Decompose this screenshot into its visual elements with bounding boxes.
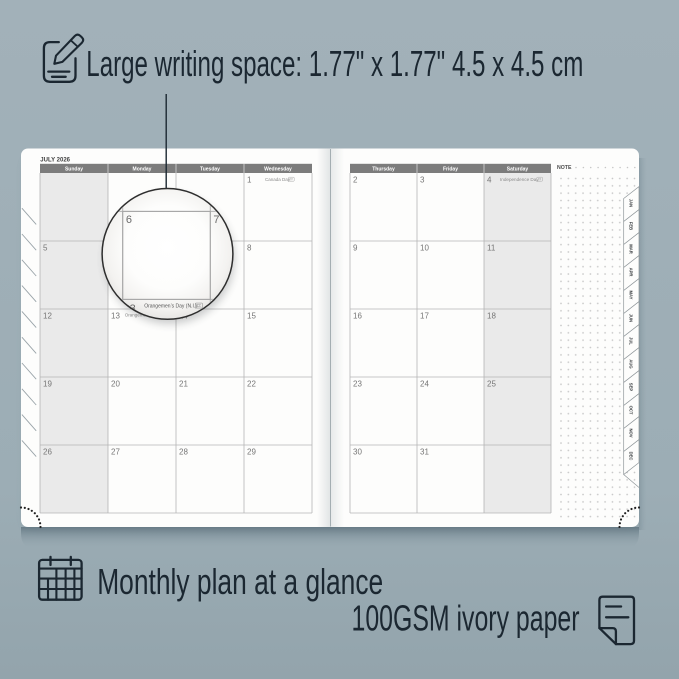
svg-text:17: 17 xyxy=(420,311,429,320)
svg-text:Saturday: Saturday xyxy=(507,167,529,173)
svg-text:NOTE: NOTE xyxy=(557,165,572,171)
svg-text:9: 9 xyxy=(353,243,358,252)
svg-text:SEP: SEP xyxy=(629,383,634,392)
svg-text:Wednesday: Wednesday xyxy=(264,167,292,173)
svg-text:MAY: MAY xyxy=(629,291,634,300)
svg-text:AUG: AUG xyxy=(629,359,634,368)
svg-text:13: 13 xyxy=(111,311,120,320)
svg-text:2: 2 xyxy=(353,175,358,184)
svg-text:Friday: Friday xyxy=(443,167,458,173)
svg-text:27: 27 xyxy=(111,447,120,456)
svg-text:3: 3 xyxy=(420,175,425,184)
svg-text:31: 31 xyxy=(420,447,429,456)
svg-text:Sunday: Sunday xyxy=(65,167,83,173)
svg-text:16: 16 xyxy=(353,311,362,320)
svg-text:23: 23 xyxy=(353,379,362,388)
svg-text:APR: APR xyxy=(629,268,634,277)
svg-text:OCT: OCT xyxy=(629,406,634,415)
svg-text:Canada Day: Canada Day xyxy=(265,177,291,182)
svg-text:JUN: JUN xyxy=(629,314,634,322)
svg-text:15: 15 xyxy=(247,311,256,320)
svg-text:8: 8 xyxy=(247,243,252,252)
svg-text:22: 22 xyxy=(247,379,256,388)
svg-text:12: 12 xyxy=(43,311,52,320)
svg-text:10: 10 xyxy=(420,243,429,252)
svg-text:4: 4 xyxy=(487,175,492,184)
svg-text:6: 6 xyxy=(126,214,132,226)
svg-text:29: 29 xyxy=(247,447,256,456)
svg-text:18: 18 xyxy=(487,311,496,320)
svg-text:JUL: JUL xyxy=(629,337,634,345)
svg-text:Orangemen’s Day (N.I.): Orangemen’s Day (N.I.) xyxy=(144,304,197,310)
svg-text:Monthly plan at a glance: Monthly plan at a glance xyxy=(97,561,383,602)
svg-text:1: 1 xyxy=(247,175,252,184)
svg-text:JAN: JAN xyxy=(629,199,634,207)
svg-text:Thursday: Thursday xyxy=(372,167,395,173)
svg-text:25: 25 xyxy=(487,379,496,388)
svg-text:Large writing space: 1.77" x 1: Large writing space: 1.77" x 1.77" 4.5 x… xyxy=(86,43,583,84)
svg-text:FEB: FEB xyxy=(629,222,634,230)
svg-text:5: 5 xyxy=(43,243,48,252)
svg-text:MAR: MAR xyxy=(629,244,634,254)
svg-text:19: 19 xyxy=(43,379,52,388)
svg-text:21: 21 xyxy=(179,379,188,388)
svg-text:100GSM ivory paper: 100GSM ivory paper xyxy=(352,598,580,639)
svg-text:7: 7 xyxy=(213,214,219,226)
svg-text:Independence Day: Independence Day xyxy=(500,177,539,182)
svg-text:20: 20 xyxy=(111,379,120,388)
svg-text:JULY 2026: JULY 2026 xyxy=(40,158,70,164)
svg-text:26: 26 xyxy=(43,447,52,456)
svg-text:11: 11 xyxy=(487,243,496,252)
svg-text:DEC: DEC xyxy=(629,452,634,461)
svg-text:Monday: Monday xyxy=(133,167,152,173)
svg-text:24: 24 xyxy=(420,379,429,388)
svg-text:NOV: NOV xyxy=(629,428,634,437)
svg-text:30: 30 xyxy=(353,447,362,456)
svg-text:Tuesday: Tuesday xyxy=(200,167,220,173)
svg-text:28: 28 xyxy=(179,447,188,456)
